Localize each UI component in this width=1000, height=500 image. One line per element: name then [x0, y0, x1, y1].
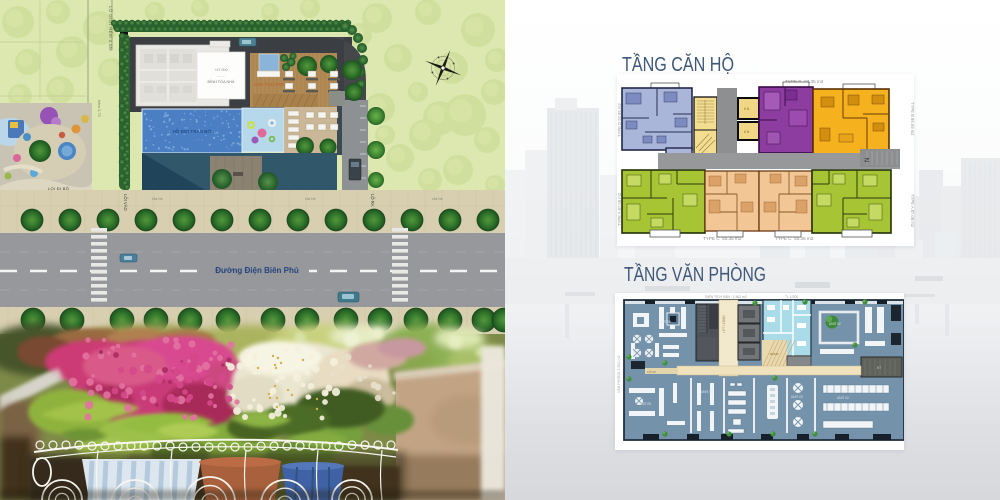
svg-text:LỐI VÀO: LỐI VÀO: [123, 194, 128, 211]
svg-text:6 N: 6 N: [744, 107, 750, 111]
svg-text:DIỆN TÍCH SÀN : 1.562 m2: DIỆN TÍCH SÀN : 1.562 m2: [705, 294, 747, 299]
svg-text:VĂN PHÒNG 1.562 m2: VĂN PHÒNG 1.562 m2: [616, 355, 621, 393]
svg-text:hẻm 3,75: hẻm 3,75: [97, 100, 102, 117]
svg-text:TẦNG VĂN PHÒNG: TẦNG VĂN PHÒNG: [624, 263, 766, 286]
svg-text:LỐI ĐI: LỐI ĐI: [647, 369, 656, 374]
svg-text:Đường Điện Biên Phủ: Đường Điện Biên Phủ: [215, 266, 299, 275]
svg-text:TYPE C 80.36 m2: TYPE C 80.36 m2: [703, 236, 742, 241]
svg-text:TL 1/200: TL 1/200: [785, 295, 798, 299]
svg-text:vỉa hè: vỉa hè: [152, 196, 163, 201]
svg-text:KT: KT: [877, 366, 881, 370]
svg-text:TYPE B 86.69 m2: TYPE B 86.69 m2: [910, 102, 914, 136]
svg-text:LỘ RA: LỘ RA: [370, 194, 375, 207]
svg-text:TẦNG CĂN HỘ: TẦNG CĂN HỘ: [622, 53, 734, 76]
svg-text:UNIT 02: UNIT 02: [837, 396, 849, 400]
svg-text:_____: _____: [216, 73, 225, 77]
svg-text:+47.000: +47.000: [214, 68, 227, 72]
svg-text:UNIT 04: UNIT 04: [701, 390, 713, 394]
svg-text:vỉa hè: vỉa hè: [432, 196, 443, 201]
svg-text:LIFT LOBBY: LIFT LOBBY: [722, 314, 726, 333]
svg-text:vỉa hè: vỉa hè: [305, 196, 316, 201]
svg-text:TYPE A 87.08 m2: TYPE A 87.08 m2: [910, 194, 914, 228]
svg-text:TYPE C 80.36 m2: TYPE C 80.36 m2: [775, 236, 814, 241]
svg-text:SÂN THƯỢNG: SÂN THƯỢNG: [254, 82, 286, 87]
svg-text:UNIT 03: UNIT 03: [791, 395, 803, 399]
svg-text:N: N: [865, 158, 871, 162]
svg-text:ĐỈNH TÒA NHÀ: ĐỈNH TÒA NHÀ: [208, 79, 235, 84]
svg-text:LỘ GIỚI HẺM 4,5M: LỘ GIỚI HẺM 4,5M: [108, 6, 113, 51]
svg-text:RAMP: RAMP: [770, 352, 779, 356]
svg-text:UNIT 06: UNIT 06: [659, 320, 671, 324]
svg-text:6 N: 6 N: [744, 130, 750, 134]
svg-text:HỒ BƠI TRÀN BỜ: HỒ BƠI TRÀN BỜ: [173, 129, 212, 134]
svg-text:UNIT 02: UNIT 02: [829, 322, 841, 326]
svg-text:UNIT 05: UNIT 05: [639, 402, 651, 406]
